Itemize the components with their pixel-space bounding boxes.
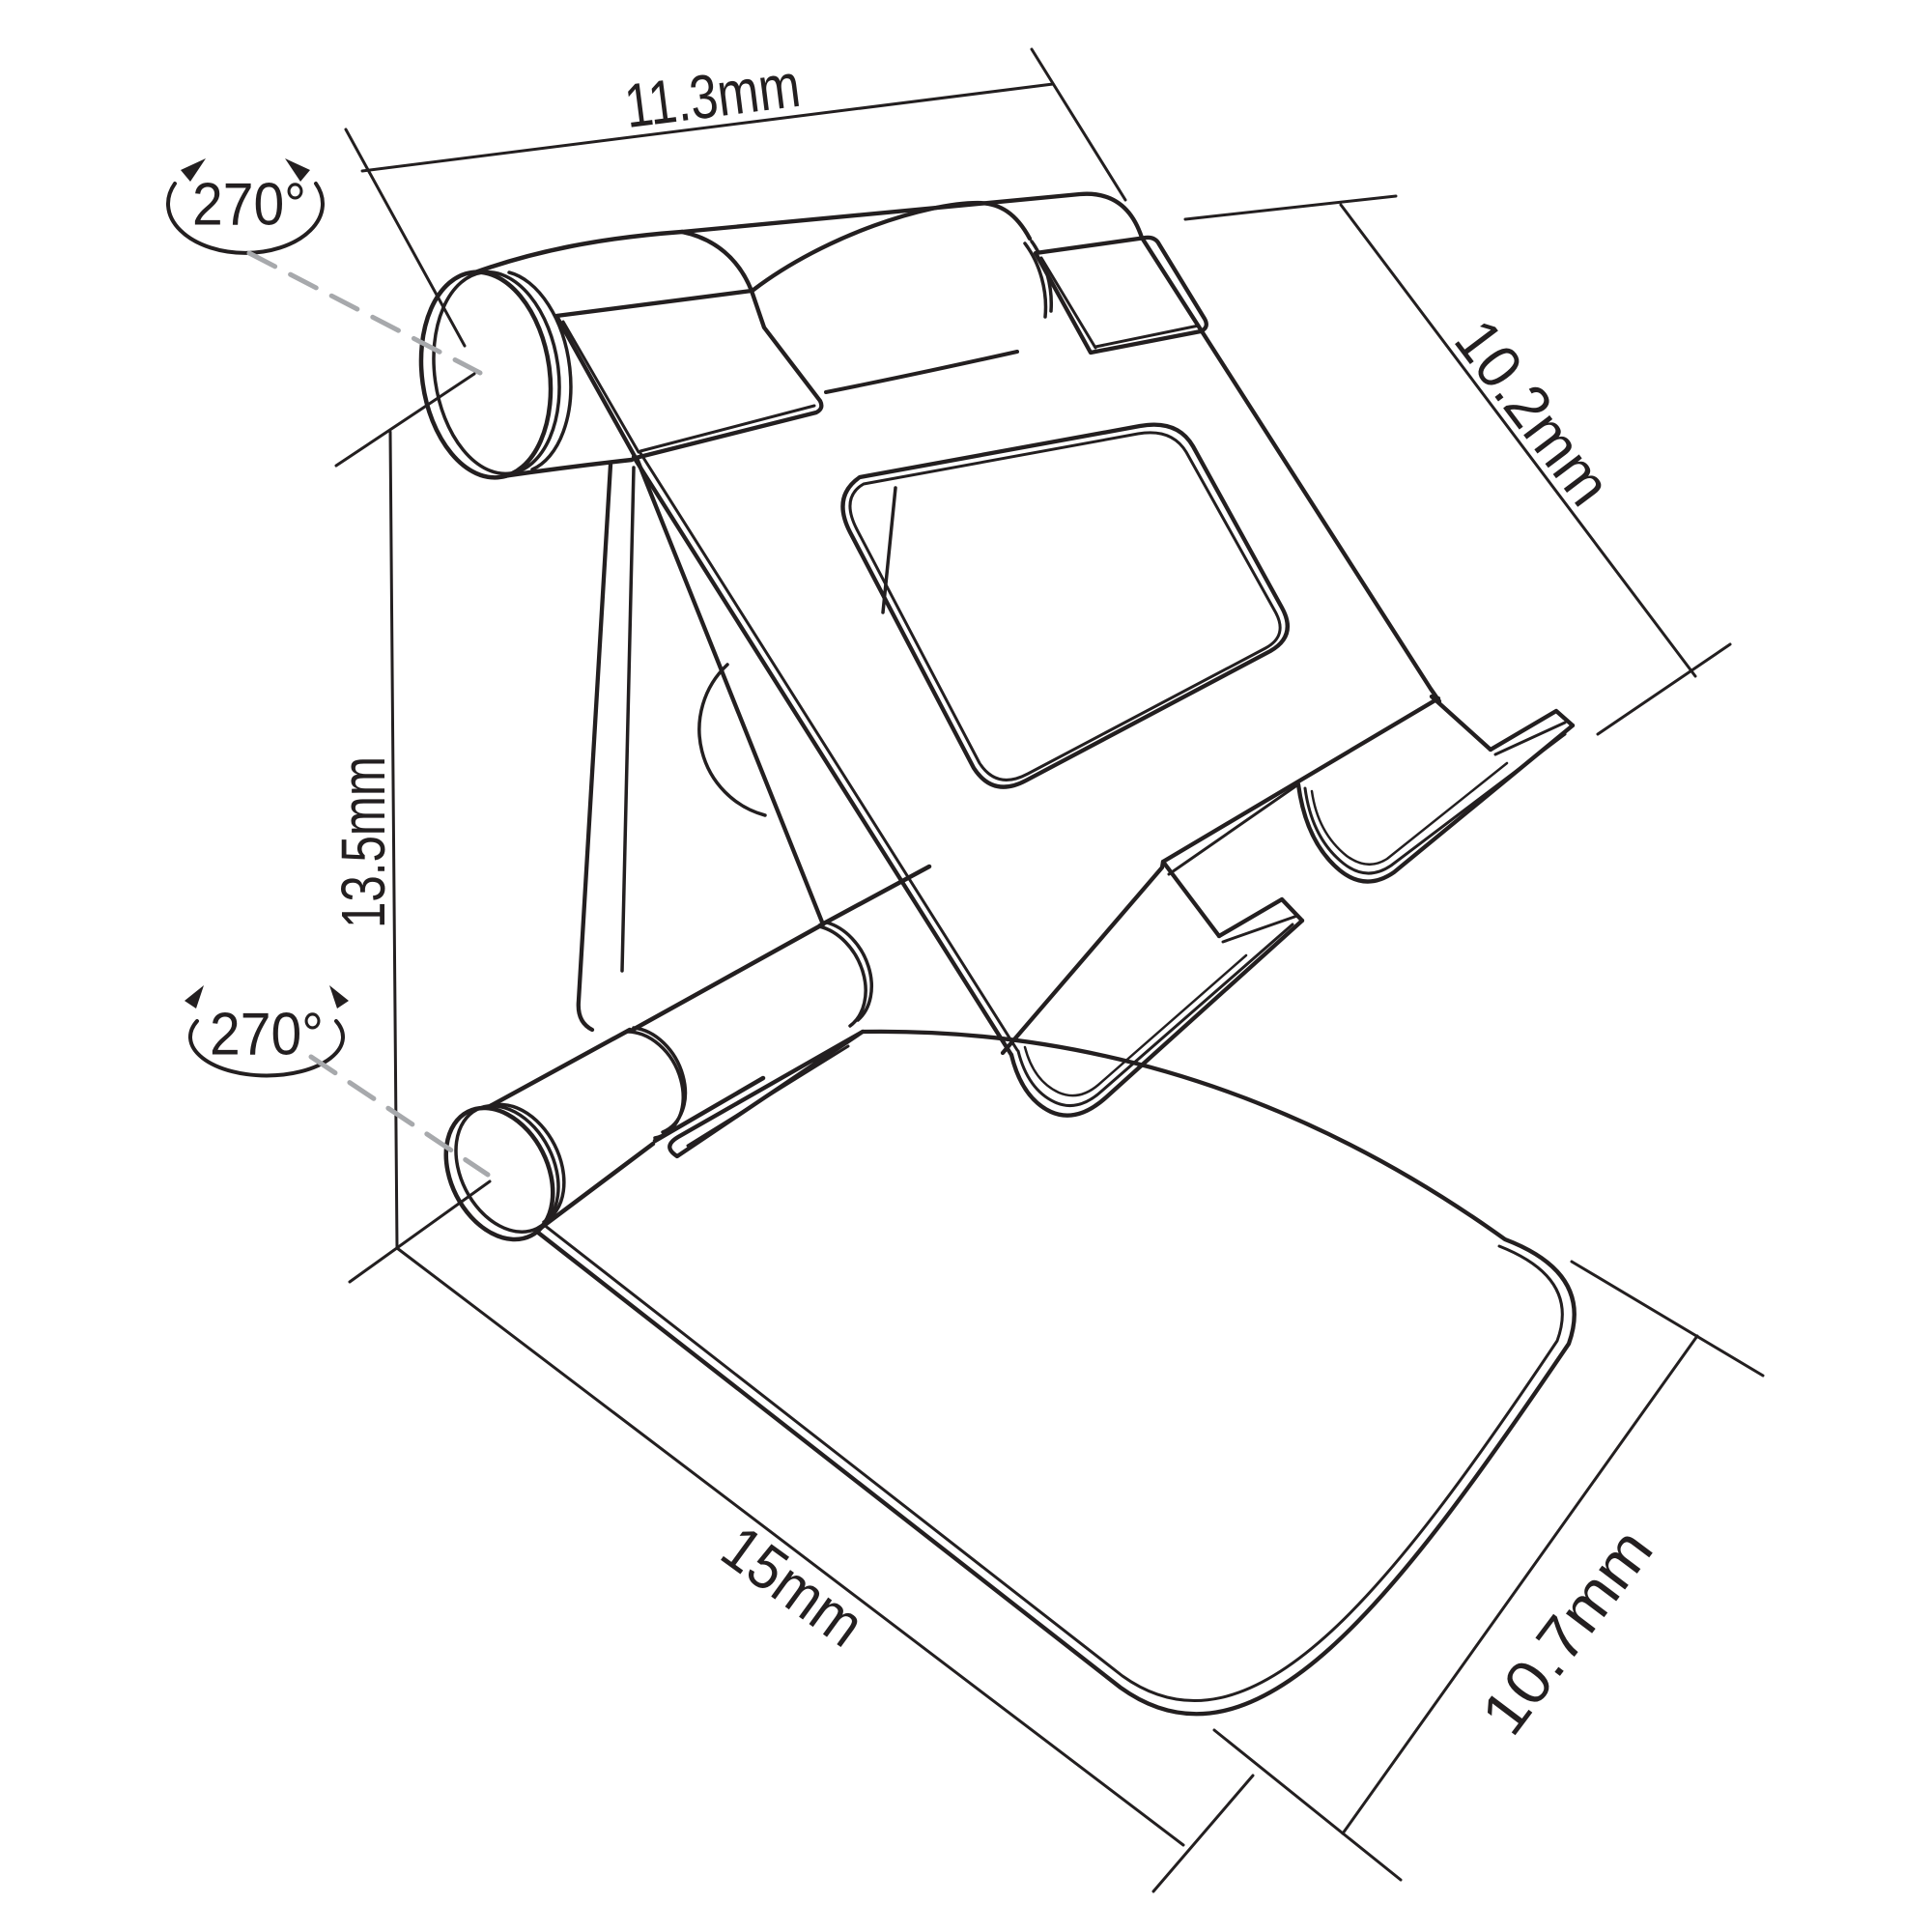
svg-text:13.5mm: 13.5mm — [328, 756, 398, 928]
svg-text:270°: 270° — [192, 171, 306, 238]
svg-text:270°: 270° — [210, 1001, 324, 1067]
